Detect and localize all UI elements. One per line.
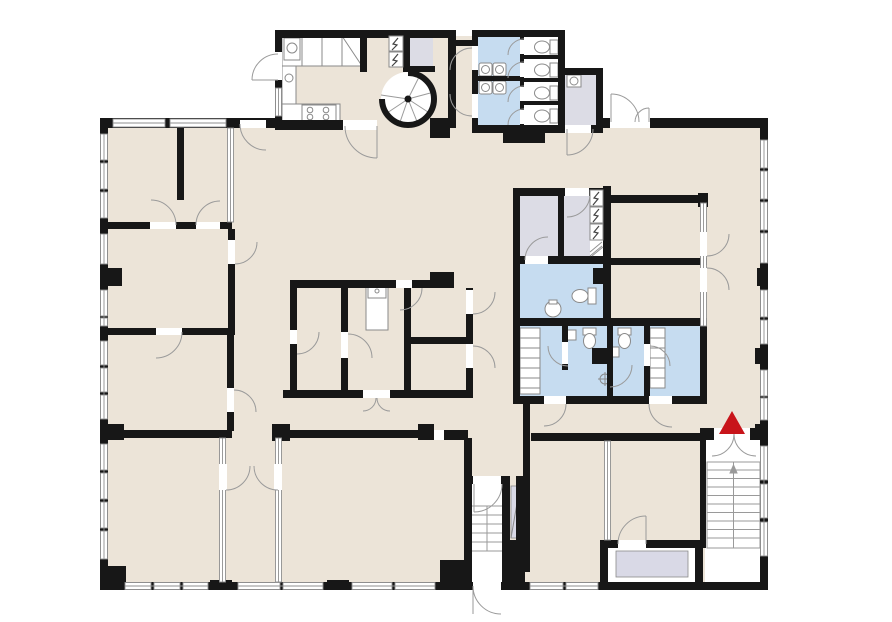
washbasin — [493, 63, 506, 76]
washbasin — [479, 81, 492, 94]
floor-plan-canvas — [0, 0, 892, 622]
central-island — [366, 284, 388, 330]
toilet — [535, 63, 559, 77]
floor-plan-page — [0, 0, 892, 622]
electrical-panel-icon — [590, 190, 603, 206]
floor-areas — [100, 30, 768, 590]
toilet — [535, 40, 559, 54]
washbasin — [493, 81, 506, 94]
stove — [302, 105, 336, 121]
entry-vestibule — [470, 480, 506, 590]
toilet — [535, 109, 559, 123]
storage-a — [520, 195, 558, 256]
spiral-staircase — [381, 72, 435, 126]
toilet — [535, 86, 559, 100]
electrical-panel-icon — [389, 36, 403, 51]
elevator-mat — [616, 551, 688, 577]
washbasin — [479, 63, 492, 76]
kitchen-sink — [284, 38, 300, 60]
toilet — [588, 288, 596, 304]
main-stairs — [707, 462, 760, 548]
kitchen-counter-left — [282, 66, 296, 106]
electrical-panel-icon — [590, 224, 603, 240]
electrical-panel-icon — [590, 207, 603, 223]
electrical-panel-icon — [389, 52, 403, 67]
